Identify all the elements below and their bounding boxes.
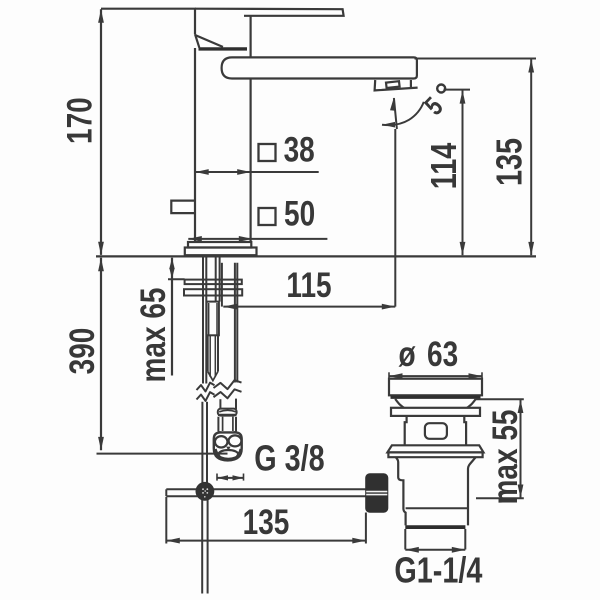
svg-text:170: 170	[59, 97, 99, 144]
svg-text:max 55: max 55	[485, 410, 525, 505]
svg-text:114: 114	[423, 143, 464, 189]
svg-text:115: 115	[286, 265, 331, 305]
svg-text:135: 135	[488, 138, 529, 186]
svg-text:135: 135	[243, 502, 290, 542]
svg-text:max 65: max 65	[133, 288, 173, 383]
svg-text:390: 390	[62, 328, 102, 375]
svg-text:50: 50	[284, 194, 315, 234]
svg-text:G1-1/4: G1-1/4	[394, 549, 482, 590]
svg-text:38: 38	[284, 130, 315, 170]
svg-text:63: 63	[427, 334, 458, 374]
svg-text:ø: ø	[399, 334, 417, 374]
svg-text:G 3/8: G 3/8	[254, 437, 324, 478]
